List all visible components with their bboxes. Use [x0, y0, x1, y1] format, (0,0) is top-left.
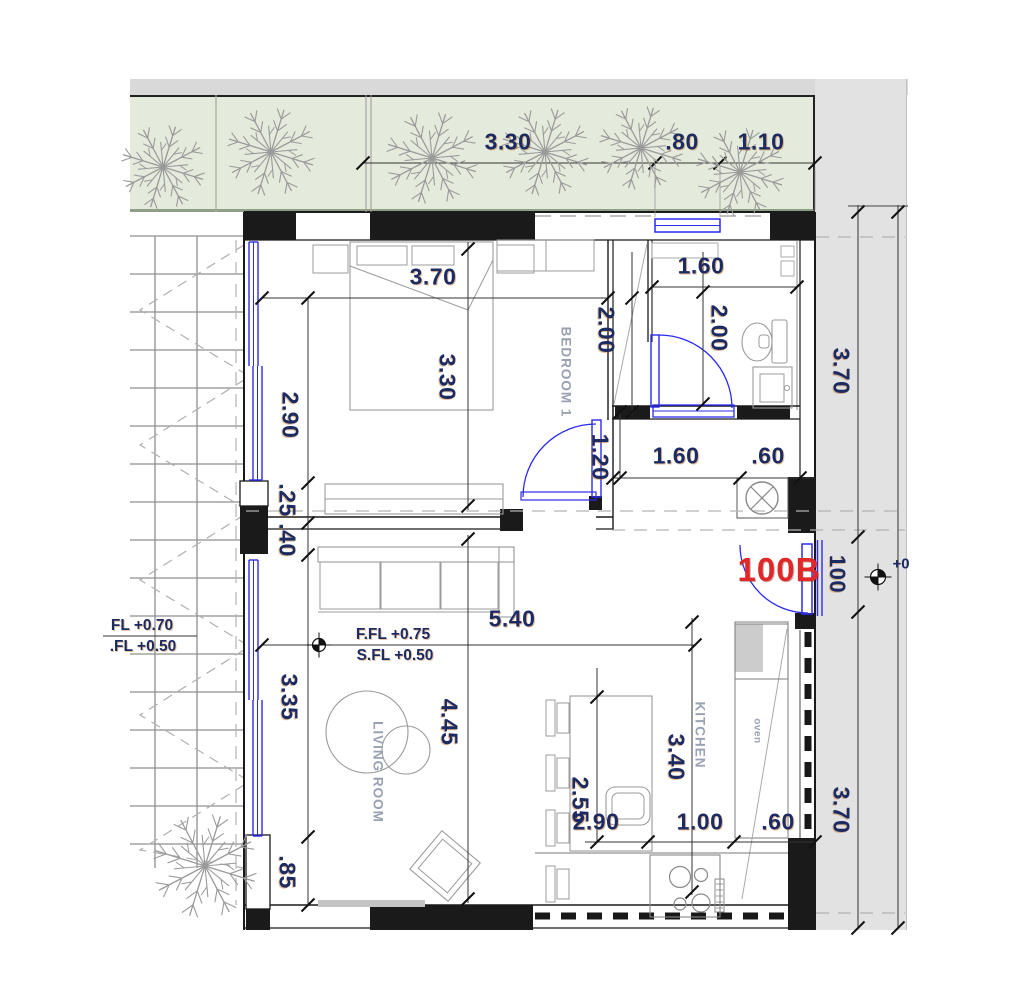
tree-icon — [154, 815, 257, 918]
level-marker-icon — [307, 633, 332, 658]
oven-label: oven — [752, 718, 763, 743]
dim-kitchen-width-1: 1.00 — [677, 809, 724, 836]
dim-right-bottom: 3.70 — [828, 787, 855, 834]
dim-bedroom-width: 3.70 — [410, 264, 457, 291]
dim-bath-height: 2.00 — [706, 305, 733, 352]
dim-right-top: 3.70 — [828, 348, 855, 395]
dim-bedroom-right-height: 2.00 — [593, 307, 620, 354]
staircase-context — [130, 236, 244, 868]
dim-top-2: .80 — [665, 129, 698, 156]
shaft-x-icon — [746, 482, 778, 514]
unit-label: 100B — [738, 551, 821, 589]
level-marker-icon — [865, 564, 892, 591]
dim-dining-width: 2.90 — [573, 809, 620, 836]
room-label-bedroom: BEDROOM 1 — [559, 327, 574, 418]
dim-top-1: 3.30 — [485, 129, 532, 156]
dim-entry-width: 100 — [824, 555, 850, 593]
terrace-sfl-text: .FL +0.50 — [110, 638, 177, 656]
living-ffl-text: F.FL +0.75 — [356, 626, 430, 644]
dim-bedroom-left-height: 2.90 — [277, 392, 304, 439]
dim-kitchen-width-2: .60 — [761, 809, 794, 836]
living-sfl-text: S.FL +0.50 — [357, 647, 434, 665]
dim-hall-height: 1.20 — [587, 434, 614, 481]
dim-kitchen-height: 3.40 — [663, 734, 690, 781]
tree-icon — [386, 112, 477, 203]
dim-bath-width: 1.60 — [678, 253, 725, 280]
dim-living-mid-height: 4.45 — [436, 699, 463, 746]
entry-level-text: +0 — [892, 556, 909, 573]
dim-hall-width-1: 1.60 — [653, 443, 700, 470]
dim-hall-width-2: .60 — [751, 443, 784, 470]
tree-icon — [121, 125, 204, 208]
terrace-ffl-text: FL +0.70 — [111, 617, 173, 635]
dim-living-width: 5.40 — [489, 606, 536, 633]
dim-bedroom-mid-height: 3.30 — [434, 354, 461, 401]
dim-wall-b: .40 — [274, 523, 301, 556]
room-label-kitchen: KITCHEN — [693, 702, 708, 769]
dim-left-lower: .85 — [274, 855, 301, 888]
dim-wall-a: .25 — [274, 483, 301, 516]
tree-icon — [227, 108, 314, 195]
dim-living-left-height: 3.35 — [276, 674, 303, 721]
dim-top-3: 1.10 — [738, 129, 785, 156]
room-label-living: LIVING ROOM — [371, 721, 386, 823]
windows-doors — [249, 219, 822, 836]
floor-plan-canvas: 3.30 .80 1.10 3.70 2.90 3.30 2.00 BEDROO… — [0, 0, 1024, 1002]
walls — [216, 95, 815, 930]
